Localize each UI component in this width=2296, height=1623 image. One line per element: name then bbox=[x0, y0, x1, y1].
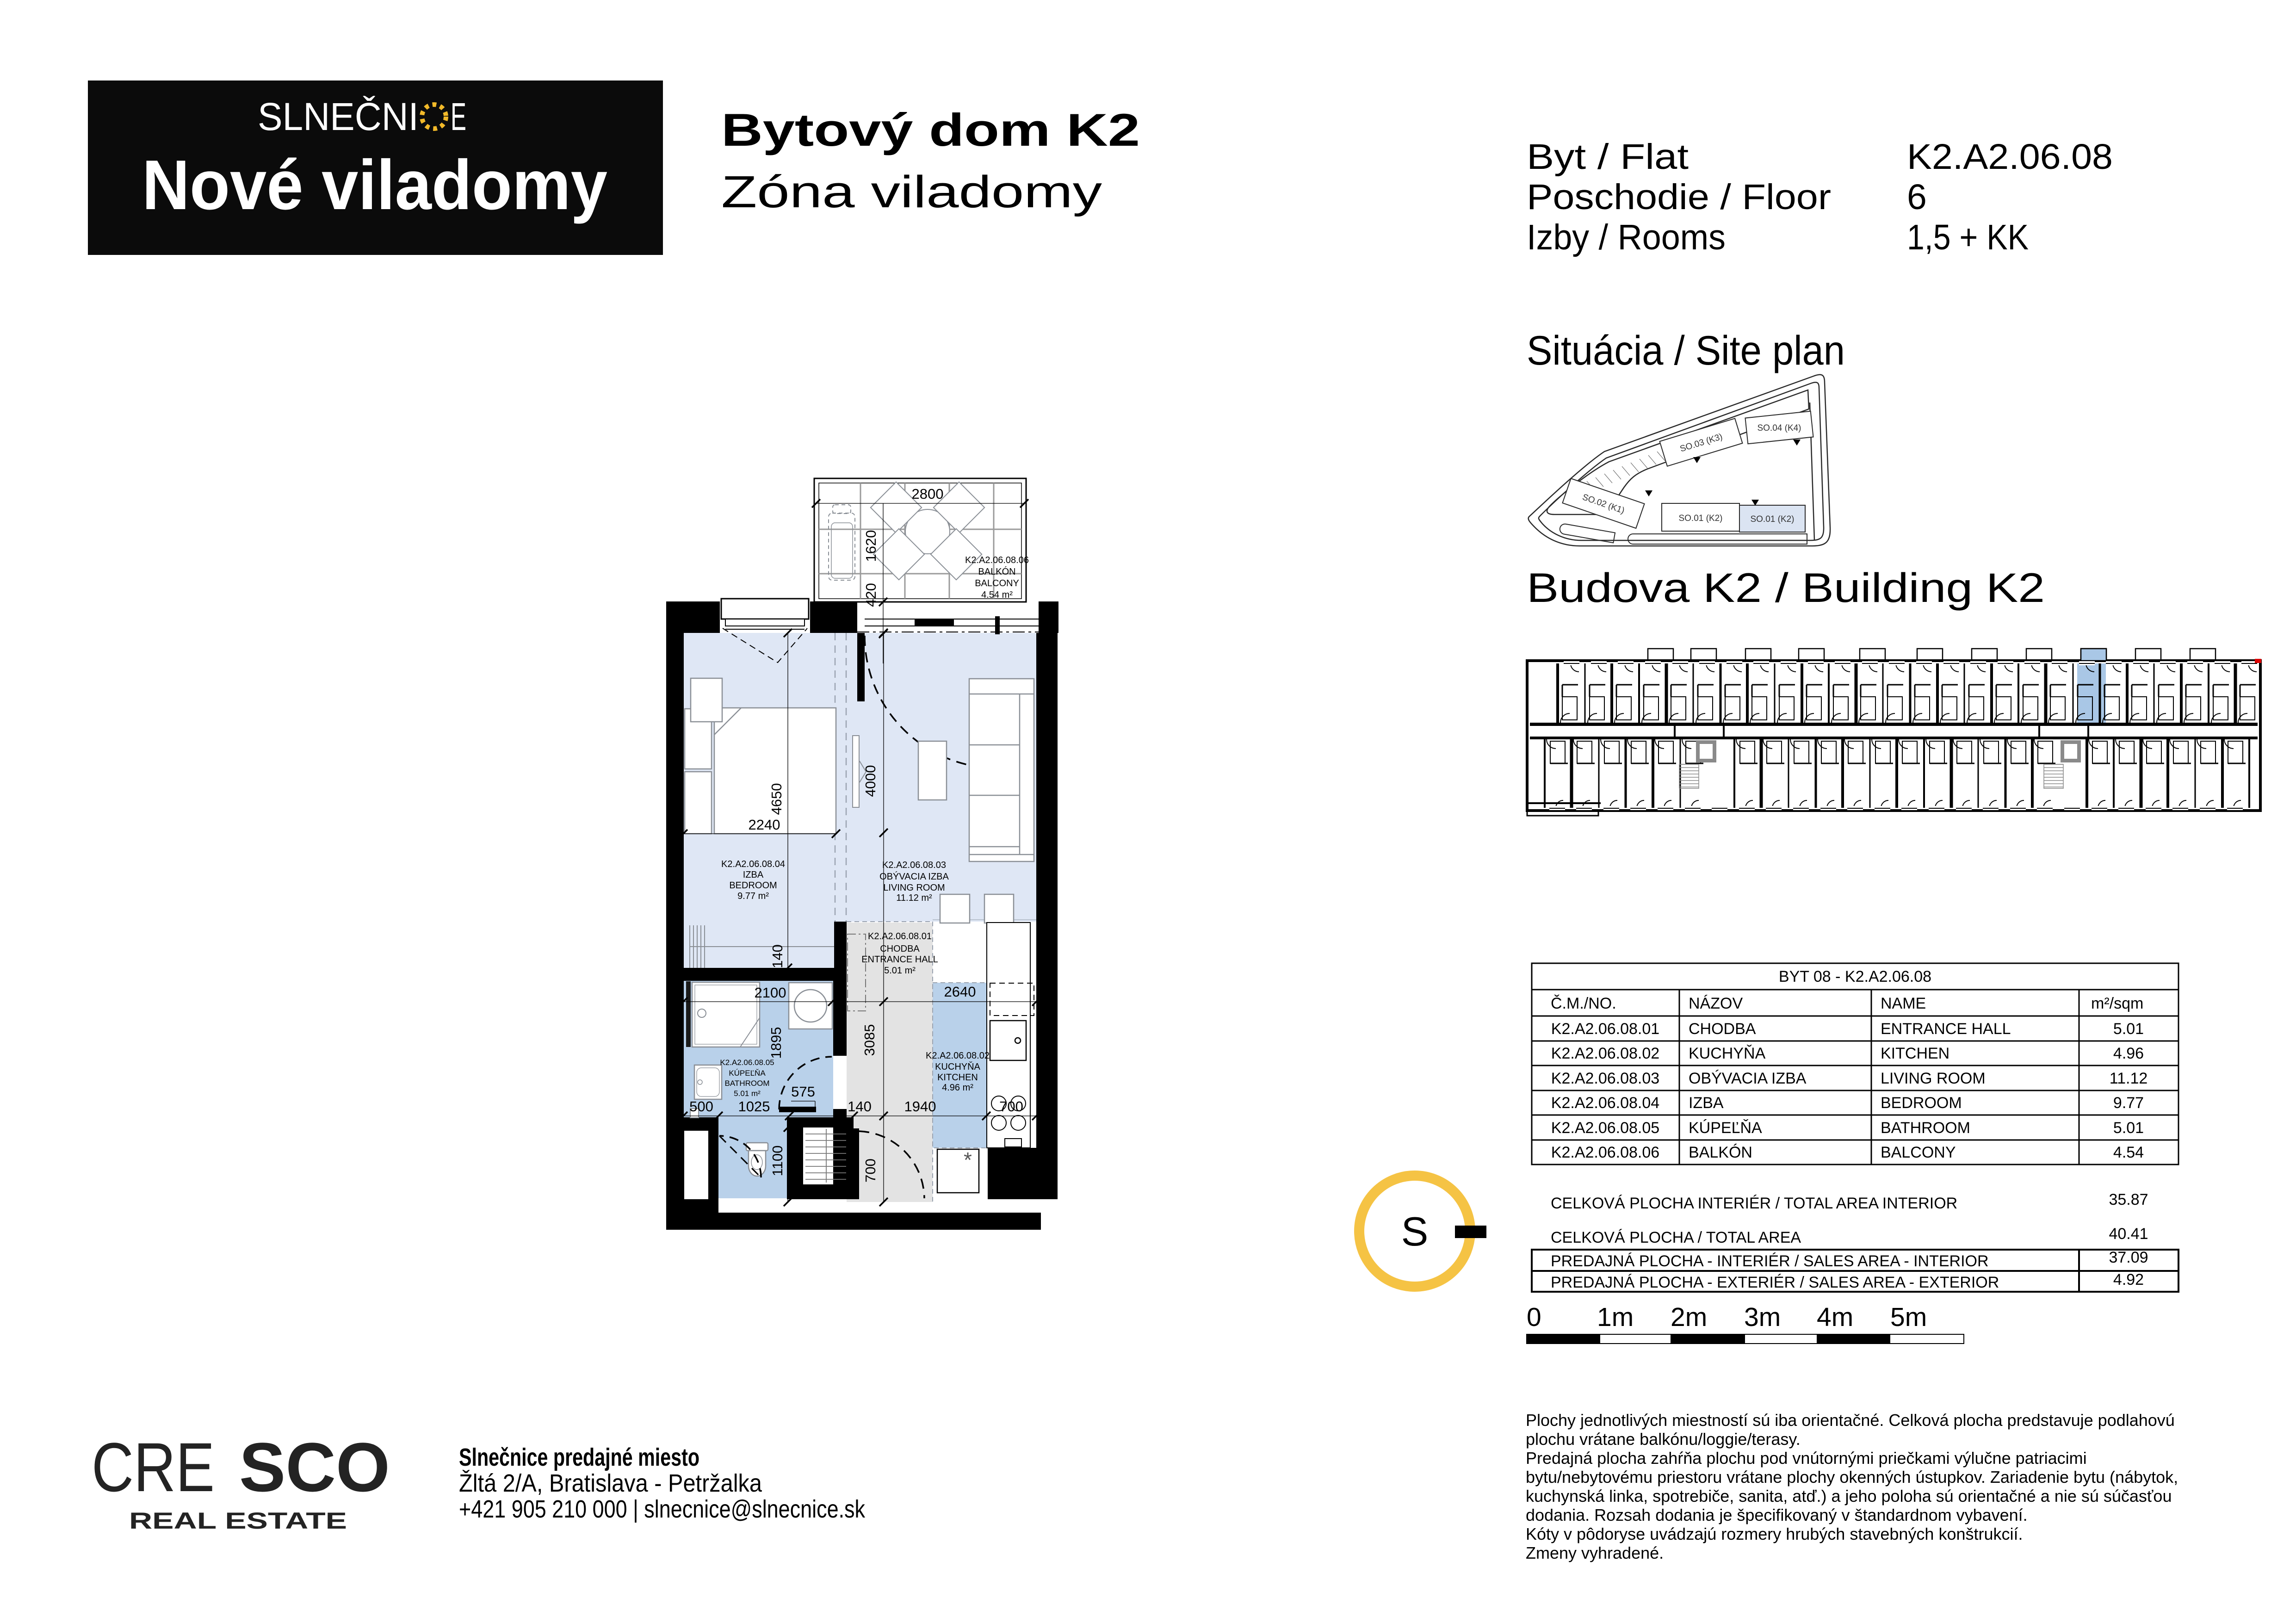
svg-text:1895: 1895 bbox=[768, 1027, 784, 1059]
svg-text:K2.A2.06.08.05: K2.A2.06.08.05 bbox=[720, 1058, 774, 1067]
svg-text:4.96: 4.96 bbox=[2113, 1045, 2144, 1062]
svg-text:+421 905 210 000 | slnecnice@s: +421 905 210 000 | slnecnice@slnecnice.s… bbox=[459, 1495, 866, 1523]
svg-text:Bytový dom K2: Bytový dom K2 bbox=[721, 104, 1140, 155]
svg-text:6: 6 bbox=[1907, 177, 1927, 217]
svg-text:BYT 08 - K2.A2.06.08: BYT 08 - K2.A2.06.08 bbox=[1779, 968, 1931, 985]
svg-text:K2.A2.06.08.04: K2.A2.06.08.04 bbox=[721, 859, 785, 869]
svg-text:700: 700 bbox=[862, 1158, 879, 1183]
svg-text:LIVING ROOM: LIVING ROOM bbox=[1881, 1070, 1986, 1087]
svg-text:K2.A2.06.08.03: K2.A2.06.08.03 bbox=[1551, 1070, 1659, 1087]
svg-text:K2.A2.06.08.02: K2.A2.06.08.02 bbox=[926, 1051, 990, 1061]
svg-text:E: E bbox=[451, 95, 466, 138]
svg-text:NÁZOV: NÁZOV bbox=[1689, 995, 1743, 1012]
svg-text:575: 575 bbox=[791, 1084, 815, 1100]
svg-text:SO.04 (K4): SO.04 (K4) bbox=[1757, 423, 1801, 433]
svg-text:11.12 m²: 11.12 m² bbox=[896, 893, 932, 903]
svg-text:2240: 2240 bbox=[749, 817, 780, 833]
svg-text:LIVING ROOM: LIVING ROOM bbox=[883, 883, 945, 893]
svg-text:5m: 5m bbox=[1890, 1302, 1927, 1332]
svg-text:Predajná plocha zahŕňa plochu: Predajná plocha zahŕňa plochu pod vnútor… bbox=[1526, 1449, 2087, 1468]
svg-text:Nové viladomy: Nové viladomy bbox=[142, 146, 607, 224]
svg-text:5.01: 5.01 bbox=[2113, 1020, 2144, 1038]
svg-text:K2.A2.06.08.06: K2.A2.06.08.06 bbox=[1551, 1144, 1659, 1161]
svg-text:CHODBA: CHODBA bbox=[880, 944, 920, 954]
svg-text:2640: 2640 bbox=[944, 984, 976, 1000]
svg-text:BATHROOM: BATHROOM bbox=[1881, 1119, 1970, 1137]
svg-text:BEDROOM: BEDROOM bbox=[729, 880, 777, 891]
svg-text:CELKOVÁ PLOCHA / TOTAL AREA: CELKOVÁ PLOCHA / TOTAL AREA bbox=[1551, 1229, 1801, 1246]
svg-text:4650: 4650 bbox=[768, 783, 785, 815]
svg-text:420: 420 bbox=[863, 583, 879, 607]
svg-text:plochu vrátane balkónu/loggie/: plochu vrátane balkónu/loggie/terasy. bbox=[1526, 1430, 1801, 1449]
svg-text:CELKOVÁ PLOCHA INTERIÉR / TOTA: CELKOVÁ PLOCHA INTERIÉR / TOTAL AREA INT… bbox=[1551, 1195, 1957, 1212]
svg-text:4m: 4m bbox=[1817, 1302, 1853, 1332]
svg-text:4.96 m²: 4.96 m² bbox=[942, 1083, 973, 1093]
svg-text:Zóna viladomy: Zóna viladomy bbox=[721, 167, 1102, 217]
svg-text:Izby / Rooms: Izby / Rooms bbox=[1527, 217, 1726, 257]
svg-text:Č.M./NO.: Č.M./NO. bbox=[1551, 995, 1616, 1012]
svg-text:BATHROOM: BATHROOM bbox=[725, 1079, 770, 1088]
svg-text:Kóty v pôdoryse uvádzajú rozme: Kóty v pôdoryse uvádzajú rozmery hrubých… bbox=[1526, 1524, 2023, 1543]
svg-text:Žltá 2/A, Bratislava - Petržal: Žltá 2/A, Bratislava - Petržalka bbox=[459, 1469, 762, 1497]
svg-text:2100: 2100 bbox=[755, 985, 786, 1001]
svg-text:CRE: CRE bbox=[92, 1428, 215, 1506]
svg-text:OBÝVACIA IZBA: OBÝVACIA IZBA bbox=[1689, 1070, 1807, 1087]
svg-text:40.41: 40.41 bbox=[2109, 1225, 2148, 1243]
svg-text:BALKÓN: BALKÓN bbox=[978, 566, 1015, 577]
svg-text:Budova K2 / Building K2: Budova K2 / Building K2 bbox=[1527, 564, 2045, 611]
svg-text:KITCHEN: KITCHEN bbox=[1881, 1045, 1949, 1062]
svg-text:KÚPEĽŇA: KÚPEĽŇA bbox=[1689, 1119, 1762, 1137]
svg-text:1940: 1940 bbox=[904, 1098, 936, 1115]
svg-text:K2.A2.06.08: K2.A2.06.08 bbox=[1907, 137, 2113, 177]
svg-text:37.09: 37.09 bbox=[2109, 1249, 2148, 1266]
svg-text:K2.A2.06.08.05: K2.A2.06.08.05 bbox=[1551, 1119, 1659, 1137]
svg-text:4.54 m²: 4.54 m² bbox=[981, 590, 1013, 600]
svg-text:4.92: 4.92 bbox=[2113, 1271, 2144, 1288]
svg-text:KUCHYŇA: KUCHYŇA bbox=[1689, 1045, 1766, 1062]
svg-text:K2.A2.06.08.01: K2.A2.06.08.01 bbox=[1551, 1020, 1659, 1038]
svg-text:1100: 1100 bbox=[769, 1146, 786, 1177]
svg-text:m²/sqm: m²/sqm bbox=[2091, 995, 2143, 1012]
svg-text:2m: 2m bbox=[1671, 1302, 1707, 1332]
svg-text:2800: 2800 bbox=[912, 486, 944, 502]
svg-text:140: 140 bbox=[769, 944, 786, 968]
svg-text:5.01 m²: 5.01 m² bbox=[734, 1089, 761, 1098]
svg-text:500: 500 bbox=[689, 1098, 713, 1115]
svg-text:ENTRANCE HALL: ENTRANCE HALL bbox=[861, 954, 938, 965]
svg-text:PREDAJNÁ PLOCHA - EXTERIÉR / S: PREDAJNÁ PLOCHA - EXTERIÉR / SALES AREA … bbox=[1551, 1274, 1999, 1291]
svg-text:OBÝVACIA IZBA: OBÝVACIA IZBA bbox=[879, 871, 949, 882]
svg-text:K2.A2.06.08.02: K2.A2.06.08.02 bbox=[1551, 1045, 1659, 1062]
svg-text:CHODBA: CHODBA bbox=[1689, 1020, 1756, 1038]
svg-text:700: 700 bbox=[999, 1098, 1023, 1115]
svg-text:5.01 m²: 5.01 m² bbox=[884, 966, 916, 976]
svg-text:SLNEČNI: SLNEČNI bbox=[258, 95, 419, 138]
svg-text:3085: 3085 bbox=[861, 1024, 878, 1056]
svg-text:1620: 1620 bbox=[863, 530, 879, 562]
svg-text:Slnečnice predajné miesto: Slnečnice predajné miesto bbox=[459, 1443, 699, 1471]
svg-text:IZBA: IZBA bbox=[743, 870, 764, 880]
svg-text:IZBA: IZBA bbox=[1689, 1094, 1724, 1112]
svg-text:9.77 m²: 9.77 m² bbox=[737, 891, 769, 901]
svg-text:Byt / Flat: Byt / Flat bbox=[1527, 137, 1689, 177]
svg-text:1025: 1025 bbox=[738, 1098, 770, 1115]
svg-text:SO.01 (K2): SO.01 (K2) bbox=[1678, 514, 1722, 523]
svg-text:SCO: SCO bbox=[239, 1428, 390, 1506]
svg-text:BALCONY: BALCONY bbox=[1881, 1144, 1956, 1161]
svg-text:BALCONY: BALCONY bbox=[975, 578, 1019, 588]
svg-text:K2.A2.06.08.01: K2.A2.06.08.01 bbox=[868, 931, 932, 942]
svg-text:dodania. Rozsah dodania je špe: dodania. Rozsah dodania je špecifikovaný… bbox=[1526, 1505, 2028, 1524]
svg-text:Situácia / Site plan: Situácia / Site plan bbox=[1527, 327, 1845, 373]
svg-text:0: 0 bbox=[1527, 1302, 1541, 1332]
svg-text:4.54: 4.54 bbox=[2113, 1144, 2144, 1161]
svg-text:*: * bbox=[964, 1148, 972, 1172]
svg-text:KÚPEĽŇA: KÚPEĽŇA bbox=[729, 1069, 766, 1078]
svg-text:K2.A2.06.08.06: K2.A2.06.08.06 bbox=[965, 555, 1029, 565]
svg-text:K2.A2.06.08.03: K2.A2.06.08.03 bbox=[882, 860, 946, 870]
svg-text:35.87: 35.87 bbox=[2109, 1191, 2148, 1208]
svg-text:11.12: 11.12 bbox=[2110, 1070, 2148, 1087]
svg-text:1,5 + KK: 1,5 + KK bbox=[1907, 217, 2029, 257]
svg-text:bytu/nebytovému priestoru vrát: bytu/nebytovému priestoru vrátane plochy… bbox=[1526, 1468, 2178, 1487]
svg-text:PREDAJNÁ PLOCHA - INTERIÉR / S: PREDAJNÁ PLOCHA - INTERIÉR / SALES AREA … bbox=[1551, 1252, 1989, 1270]
svg-text:Zmeny vyhradené.: Zmeny vyhradené. bbox=[1526, 1543, 1664, 1562]
svg-text:140: 140 bbox=[848, 1098, 872, 1115]
svg-text:KUCHYŇA: KUCHYŇA bbox=[935, 1061, 980, 1072]
svg-text:9.77: 9.77 bbox=[2113, 1094, 2144, 1112]
svg-text:REAL ESTATE: REAL ESTATE bbox=[129, 1508, 347, 1534]
svg-text:BALKÓN: BALKÓN bbox=[1689, 1144, 1752, 1161]
svg-text:BEDROOM: BEDROOM bbox=[1881, 1094, 1962, 1112]
svg-text:NAME: NAME bbox=[1881, 995, 1926, 1012]
svg-text:Poschodie / Floor: Poschodie / Floor bbox=[1527, 177, 1831, 217]
svg-text:K2.A2.06.08.04: K2.A2.06.08.04 bbox=[1551, 1094, 1659, 1112]
svg-text:kuchynská linka, spotrebiče, s: kuchynská linka, spotrebiče, sanita, atď… bbox=[1526, 1487, 2172, 1505]
svg-text:Plochy jednotlivých miestností: Plochy jednotlivých miestností sú iba or… bbox=[1526, 1411, 2175, 1430]
svg-text:S: S bbox=[1401, 1208, 1429, 1254]
svg-text:1m: 1m bbox=[1597, 1302, 1634, 1332]
svg-text:KITCHEN: KITCHEN bbox=[937, 1072, 978, 1083]
svg-text:ENTRANCE HALL: ENTRANCE HALL bbox=[1881, 1020, 2011, 1038]
svg-text:3m: 3m bbox=[1744, 1302, 1781, 1332]
svg-text:5.01: 5.01 bbox=[2113, 1119, 2144, 1137]
svg-text:SO.01 (K2): SO.01 (K2) bbox=[1750, 514, 1794, 524]
svg-text:4000: 4000 bbox=[862, 765, 879, 797]
